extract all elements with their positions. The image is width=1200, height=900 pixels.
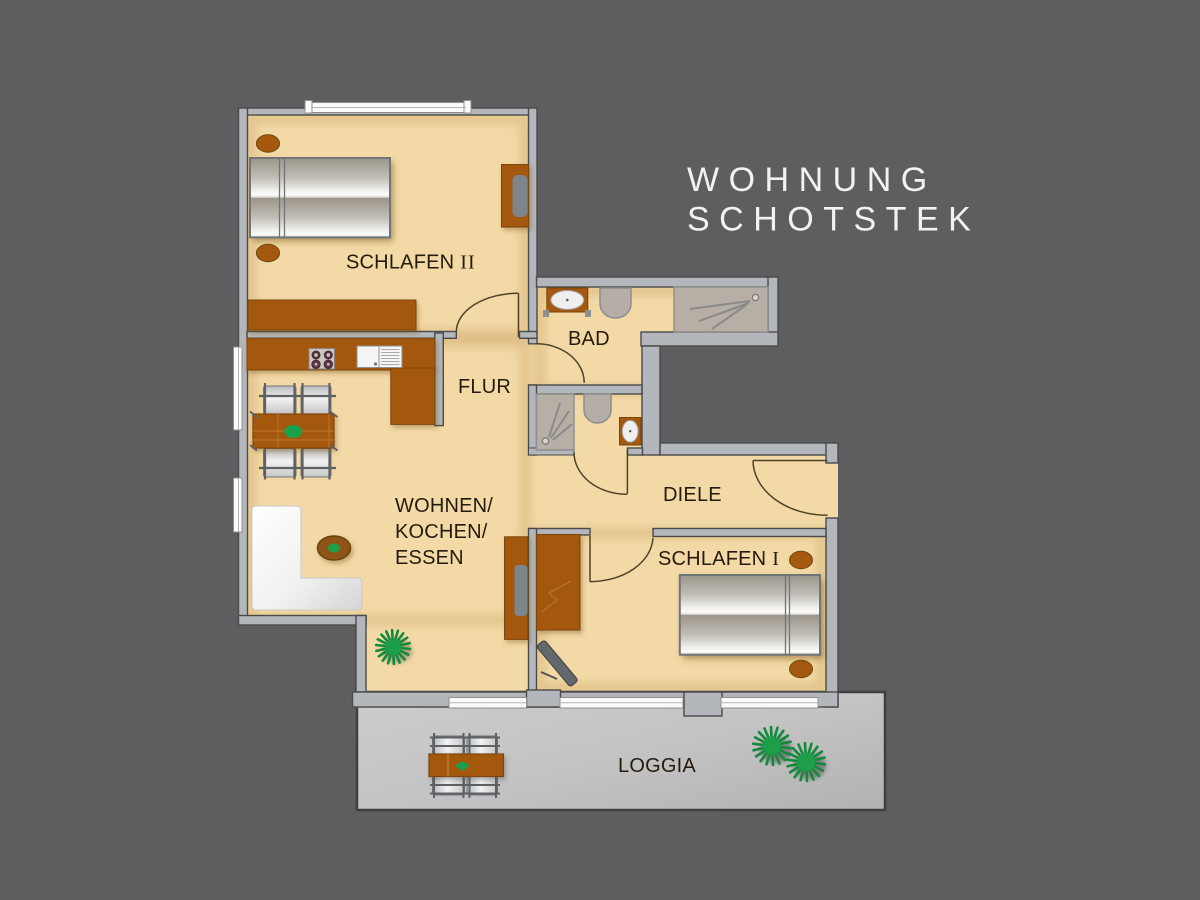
svg-text:WOHNEN/: WOHNEN/ — [395, 495, 493, 517]
svg-text:KOCHEN/: KOCHEN/ — [395, 521, 488, 543]
svg-text:BAD: BAD — [568, 328, 610, 350]
svg-text:ESSEN: ESSEN — [395, 547, 464, 569]
svg-text:WOHNUNG: WOHNUNG — [687, 161, 937, 199]
svg-text:DIELE: DIELE — [663, 484, 722, 506]
svg-text:SCHOTSTEK: SCHOTSTEK — [687, 201, 980, 239]
svg-text:FLUR: FLUR — [458, 376, 511, 398]
svg-text:SCHLAFEN II: SCHLAFEN II — [346, 252, 476, 274]
svg-text:SCHLAFEN I: SCHLAFEN I — [658, 548, 780, 570]
svg-text:LOGGIA: LOGGIA — [618, 755, 696, 777]
